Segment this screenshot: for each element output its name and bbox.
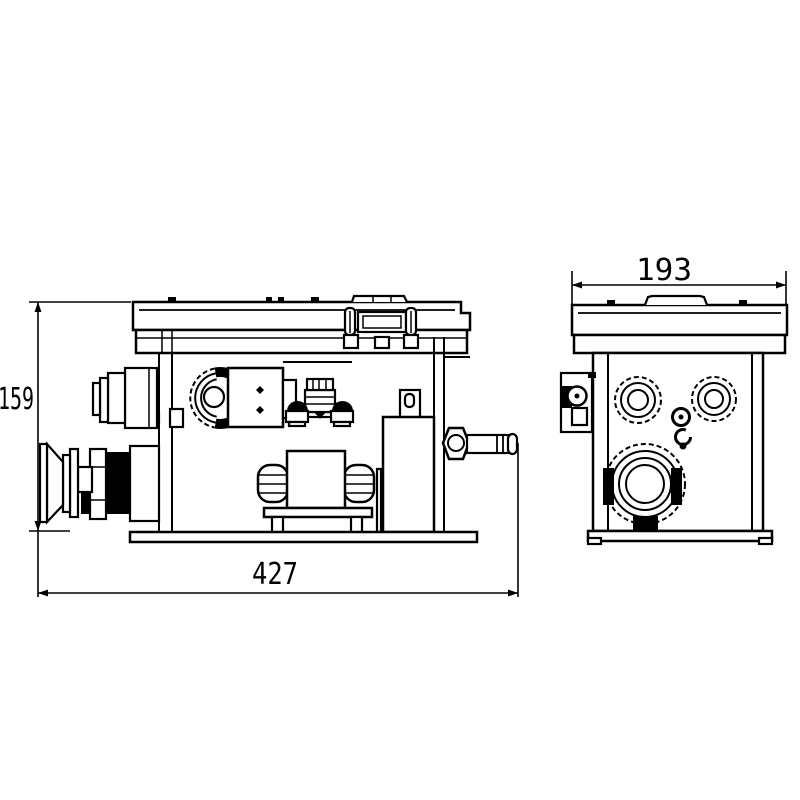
end-view-lid xyxy=(572,296,787,353)
lid-tick xyxy=(278,297,284,302)
two-view-engineering-drawing: 159 427 193 xyxy=(0,0,800,800)
lid-tick xyxy=(311,297,319,302)
technical-drawing-canvas: 159 427 193 xyxy=(0,0,800,800)
stand-top xyxy=(264,508,372,517)
upper-cable-entry xyxy=(93,368,157,428)
clamp-tab xyxy=(671,468,682,505)
dimension-label-193: 193 xyxy=(636,253,692,288)
support-rod xyxy=(377,469,381,532)
end-view-base-plate xyxy=(588,531,772,544)
lid-tick xyxy=(739,300,747,305)
dimension-label-159: 159 xyxy=(0,382,34,417)
clamp-tab xyxy=(603,468,614,505)
lid-tick xyxy=(168,297,176,302)
dimension-label-427: 427 xyxy=(252,557,298,592)
mount-slot xyxy=(405,394,414,407)
lid-tick xyxy=(607,300,615,305)
end-view xyxy=(561,296,787,544)
hex-nut xyxy=(443,428,469,459)
conduit-pipe xyxy=(467,435,511,453)
side-view-lid xyxy=(133,297,470,357)
internal-gland-left xyxy=(190,368,296,428)
side-view-base-plate xyxy=(130,532,477,542)
stand-leg xyxy=(272,517,283,533)
lid-tick xyxy=(266,297,272,302)
clamp-tab xyxy=(633,516,658,531)
stand-leg xyxy=(351,517,362,533)
side-bracket xyxy=(561,372,596,432)
lower-plug-connector xyxy=(40,444,159,522)
